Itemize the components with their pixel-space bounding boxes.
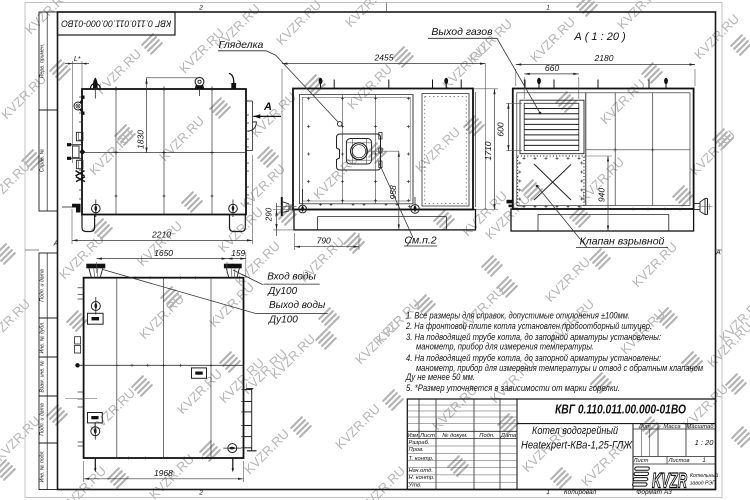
svg-text:2. На фронтовой плите котла ус: 2. На фронтовой плите котла установлен п…	[405, 321, 652, 331]
svg-text:Пров.: Пров.	[409, 447, 424, 453]
svg-text:Перв. примен.: Перв. примен.	[39, 44, 45, 78]
svg-text:1: 1	[546, 5, 550, 12]
svg-text:600: 600	[495, 122, 505, 136]
svg-text:Утв.: Утв.	[408, 483, 422, 489]
svg-text:3. На подводящей трубе котла,: 3. На подводящей трубе котла, до запорно…	[406, 332, 661, 342]
svg-text:Котельный: Котельный	[690, 472, 718, 479]
svg-text:Лист: Лист	[633, 458, 649, 464]
svg-text:Клапан взрывной: Клапан взрывной	[580, 236, 665, 248]
svg-text:№ докум.: № докум.	[442, 433, 468, 439]
svg-text:Ду100: Ду100	[267, 286, 297, 297]
svg-text:Формат А3: Формат А3	[636, 489, 672, 496]
svg-text:Выход газов: Выход газов	[431, 26, 493, 38]
svg-text:1968: 1968	[154, 468, 173, 478]
svg-text:940: 940	[597, 188, 607, 202]
svg-text:Инв. № подл.: Инв. № подл.	[39, 450, 45, 482]
svg-text:290: 290	[265, 207, 274, 222]
svg-text:1. Все размеры для справок, до: 1. Все размеры для справок, допустимые о…	[406, 311, 630, 321]
svg-text:Копировал: Копировал	[564, 489, 597, 496]
svg-text:См.п.2: См.п.2	[404, 235, 436, 247]
svg-text:1 : 20: 1 : 20	[695, 438, 715, 447]
svg-text:КВГ 0.110.011.00.000-01ВО: КВГ 0.110.011.00.000-01ВО	[61, 17, 172, 28]
svg-text:А: А	[53, 241, 59, 248]
svg-text:Котел водогрейный: Котел водогрейный	[532, 425, 618, 437]
svg-text:Справ. №: Справ. №	[39, 148, 45, 172]
svg-text:790: 790	[317, 236, 331, 246]
svg-text:Гляделка: Гляделка	[219, 39, 264, 51]
svg-text:Взам. инв. №: Взам. инв. №	[39, 360, 45, 392]
svg-text:КВГ 0.110.011.00.000-01ВО: КВГ 0.110.011.00.000-01ВО	[555, 403, 686, 417]
svg-text:Н. контр.: Н. контр.	[409, 475, 435, 481]
svg-text:Подп. и дата: Подп. и дата	[39, 269, 45, 302]
svg-text:Heatexpert-КВа-1,25-ГЛЖ: Heatexpert-КВа-1,25-ГЛЖ	[521, 439, 633, 451]
svg-text:958: 958	[388, 185, 398, 199]
svg-text:Ду не менее 50 мм.: Ду не менее 50 мм.	[405, 372, 475, 382]
svg-text:Дата: Дата	[500, 433, 517, 439]
svg-text:Масса: Масса	[663, 424, 681, 430]
svg-text:завод РЭП: завод РЭП	[689, 481, 716, 487]
svg-text:А: А	[715, 250, 721, 257]
svg-text:1: 1	[702, 458, 705, 464]
svg-text:5. *Размер уточняется в зависи: 5. *Размер уточняется в зависимости от м…	[406, 383, 620, 393]
svg-text:4. На подводящей трубе котла,: 4. На подводящей трубе котла, до запорно…	[406, 353, 661, 363]
svg-text:1: 1	[546, 489, 550, 496]
svg-text:2: 2	[198, 490, 203, 497]
svg-text:Листов: Листов	[667, 458, 689, 464]
svg-text:L*: L*	[74, 56, 81, 63]
svg-text:Лит.: Лит.	[638, 424, 653, 430]
svg-text:Разраб.: Разраб.	[409, 440, 430, 446]
svg-text:Вход воды: Вход воды	[267, 271, 316, 282]
svg-text:1830: 1830	[136, 130, 146, 149]
svg-text:660: 660	[545, 63, 559, 73]
svg-text:Масштаб: Масштаб	[686, 424, 714, 430]
svg-text:2180: 2180	[594, 53, 614, 63]
svg-text:159: 159	[231, 248, 245, 258]
svg-text:А: А	[263, 101, 272, 113]
svg-text:Подп.: Подп.	[479, 433, 494, 439]
svg-text:1650: 1650	[154, 248, 173, 258]
svg-text:1710: 1710	[483, 141, 493, 160]
svg-text:А ( 1 : 20 ): А ( 1 : 20 )	[573, 31, 626, 43]
svg-text:Изм: Изм	[407, 433, 418, 439]
svg-text:Нач.отд.: Нач.отд.	[409, 468, 433, 474]
svg-text:Выход воды: Выход воды	[269, 300, 326, 311]
svg-text:Подп. и дата: Подп. и дата	[39, 403, 45, 436]
svg-text:2455: 2455	[374, 53, 394, 63]
svg-text:Лист: Лист	[419, 433, 435, 439]
svg-text:Инв. № дубл.: Инв. № дубл.	[39, 322, 45, 354]
svg-text:2: 2	[198, 5, 203, 12]
svg-text:2210: 2210	[151, 229, 171, 239]
svg-text:Ду100: Ду100	[268, 315, 298, 326]
svg-text:манометр, прибор для измерения: манометр, прибор для измерения температу…	[416, 342, 594, 352]
svg-text:Т. контр.: Т. контр.	[409, 456, 434, 462]
